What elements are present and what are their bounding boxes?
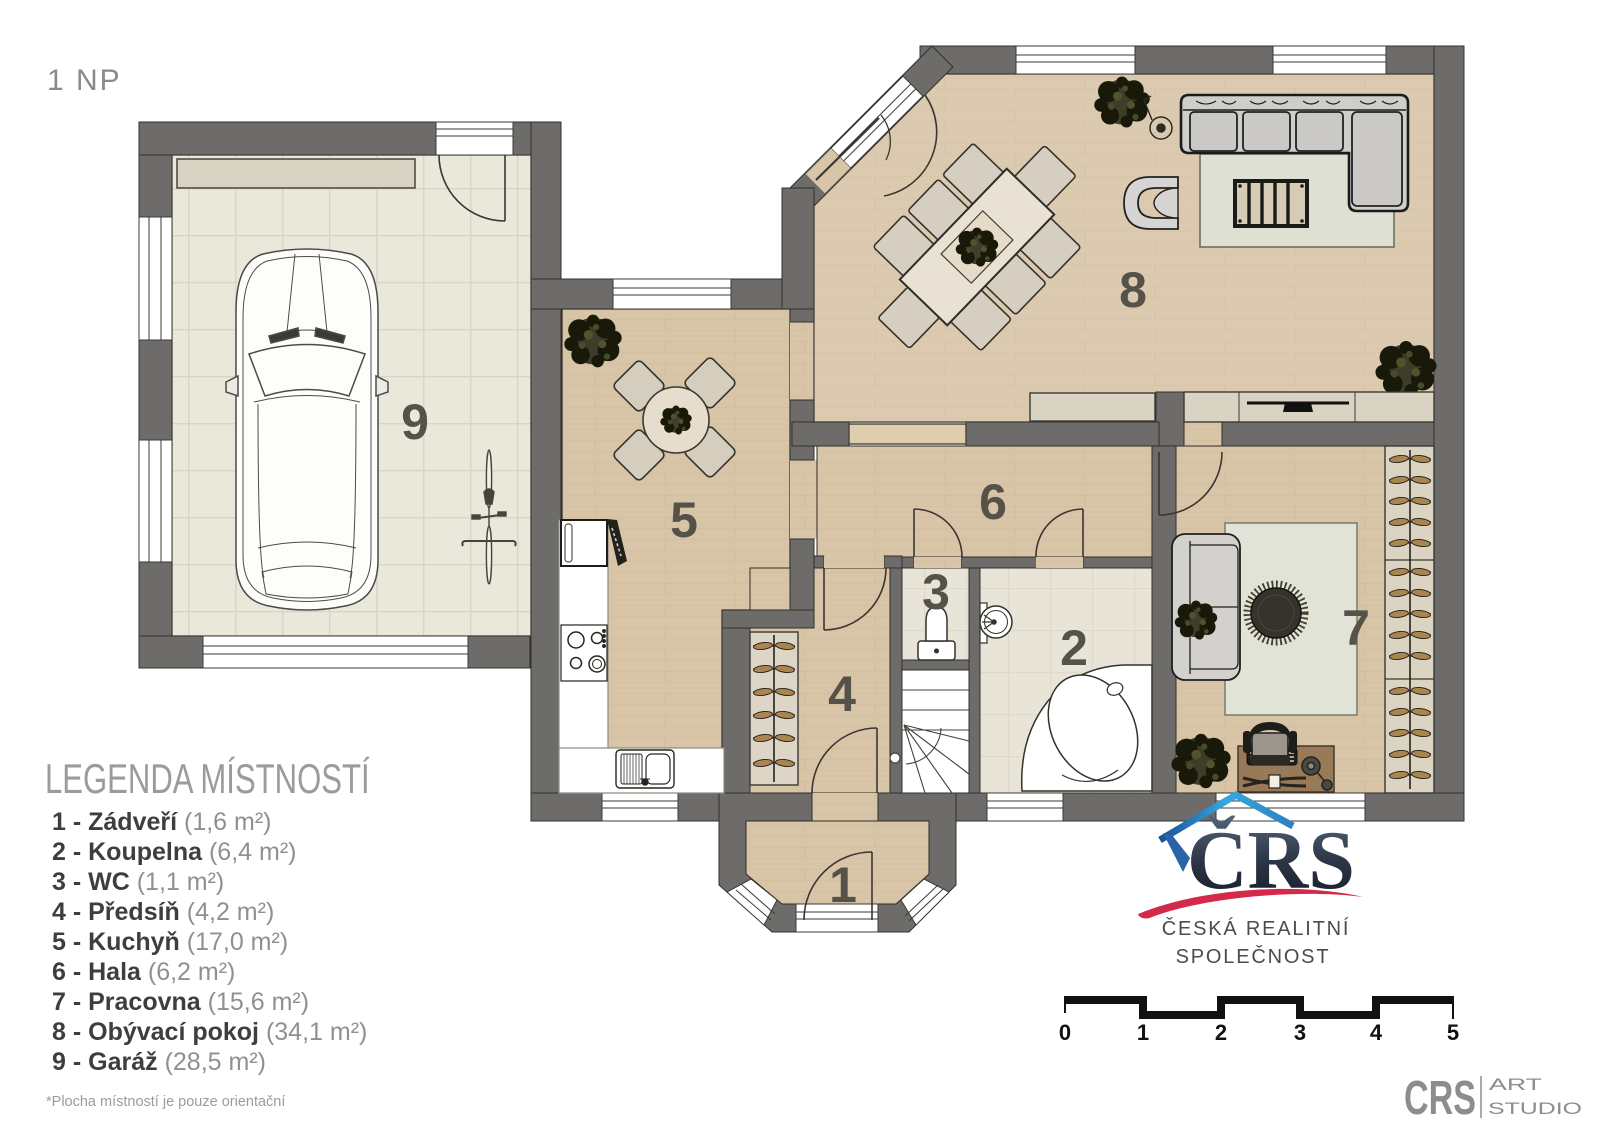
- svg-text:1: 1: [1137, 1020, 1149, 1045]
- svg-text:9 - Garáž (28,5 m²): 9 - Garáž (28,5 m²): [52, 1048, 266, 1076]
- svg-text:1 - Zádveří (1,6 m²): 1 - Zádveří (1,6 m²): [52, 808, 272, 836]
- svg-text:6: 6: [979, 474, 1007, 530]
- svg-text:4 - Předsíň (4,2 m²): 4 - Předsíň (4,2 m²): [52, 898, 274, 926]
- svg-text:CRS: CRS: [1404, 1072, 1476, 1125]
- svg-text:8 - Obývací pokoj (34,1 m²): 8 - Obývací pokoj (34,1 m²): [52, 1018, 367, 1046]
- svg-text:STUDIO: STUDIO: [1488, 1099, 1582, 1118]
- svg-text:2: 2: [1215, 1020, 1227, 1045]
- svg-text:8: 8: [1119, 262, 1147, 318]
- svg-text:3: 3: [922, 564, 950, 620]
- svg-text:2: 2: [1060, 620, 1088, 676]
- svg-text:LEGENDA MÍSTNOSTÍ: LEGENDA MÍSTNOSTÍ: [45, 755, 370, 802]
- svg-text:5: 5: [1447, 1020, 1459, 1045]
- svg-text:0: 0: [1059, 1020, 1071, 1045]
- svg-text:6 - Hala (6,2 m²): 6 - Hala (6,2 m²): [52, 958, 235, 986]
- svg-text:*Plocha místností je pouze ori: *Plocha místností je pouze orientační: [46, 1094, 285, 1110]
- svg-text:1 NP: 1 NP: [47, 64, 122, 97]
- svg-text:2 - Koupelna (6,4 m²): 2 - Koupelna (6,4 m²): [52, 838, 296, 866]
- svg-text:4: 4: [1370, 1020, 1383, 1045]
- svg-text:3: 3: [1294, 1020, 1306, 1045]
- svg-text:SPOLEČNOST: SPOLEČNOST: [1176, 945, 1331, 968]
- svg-text:9: 9: [401, 394, 429, 450]
- svg-text:ART: ART: [1489, 1075, 1542, 1094]
- svg-text:1: 1: [829, 857, 857, 913]
- svg-text:ČESKÁ REALITNÍ: ČESKÁ REALITNÍ: [1162, 917, 1351, 940]
- svg-text:7 - Pracovna (15,6 m²): 7 - Pracovna (15,6 m²): [52, 988, 309, 1016]
- svg-text:5 - Kuchyň (17,0 m²): 5 - Kuchyň (17,0 m²): [52, 928, 288, 956]
- svg-text:4: 4: [828, 666, 856, 722]
- svg-text:3 - WC (1,1 m²): 3 - WC (1,1 m²): [52, 868, 224, 896]
- svg-text:5: 5: [670, 492, 698, 548]
- svg-text:7: 7: [1342, 600, 1370, 656]
